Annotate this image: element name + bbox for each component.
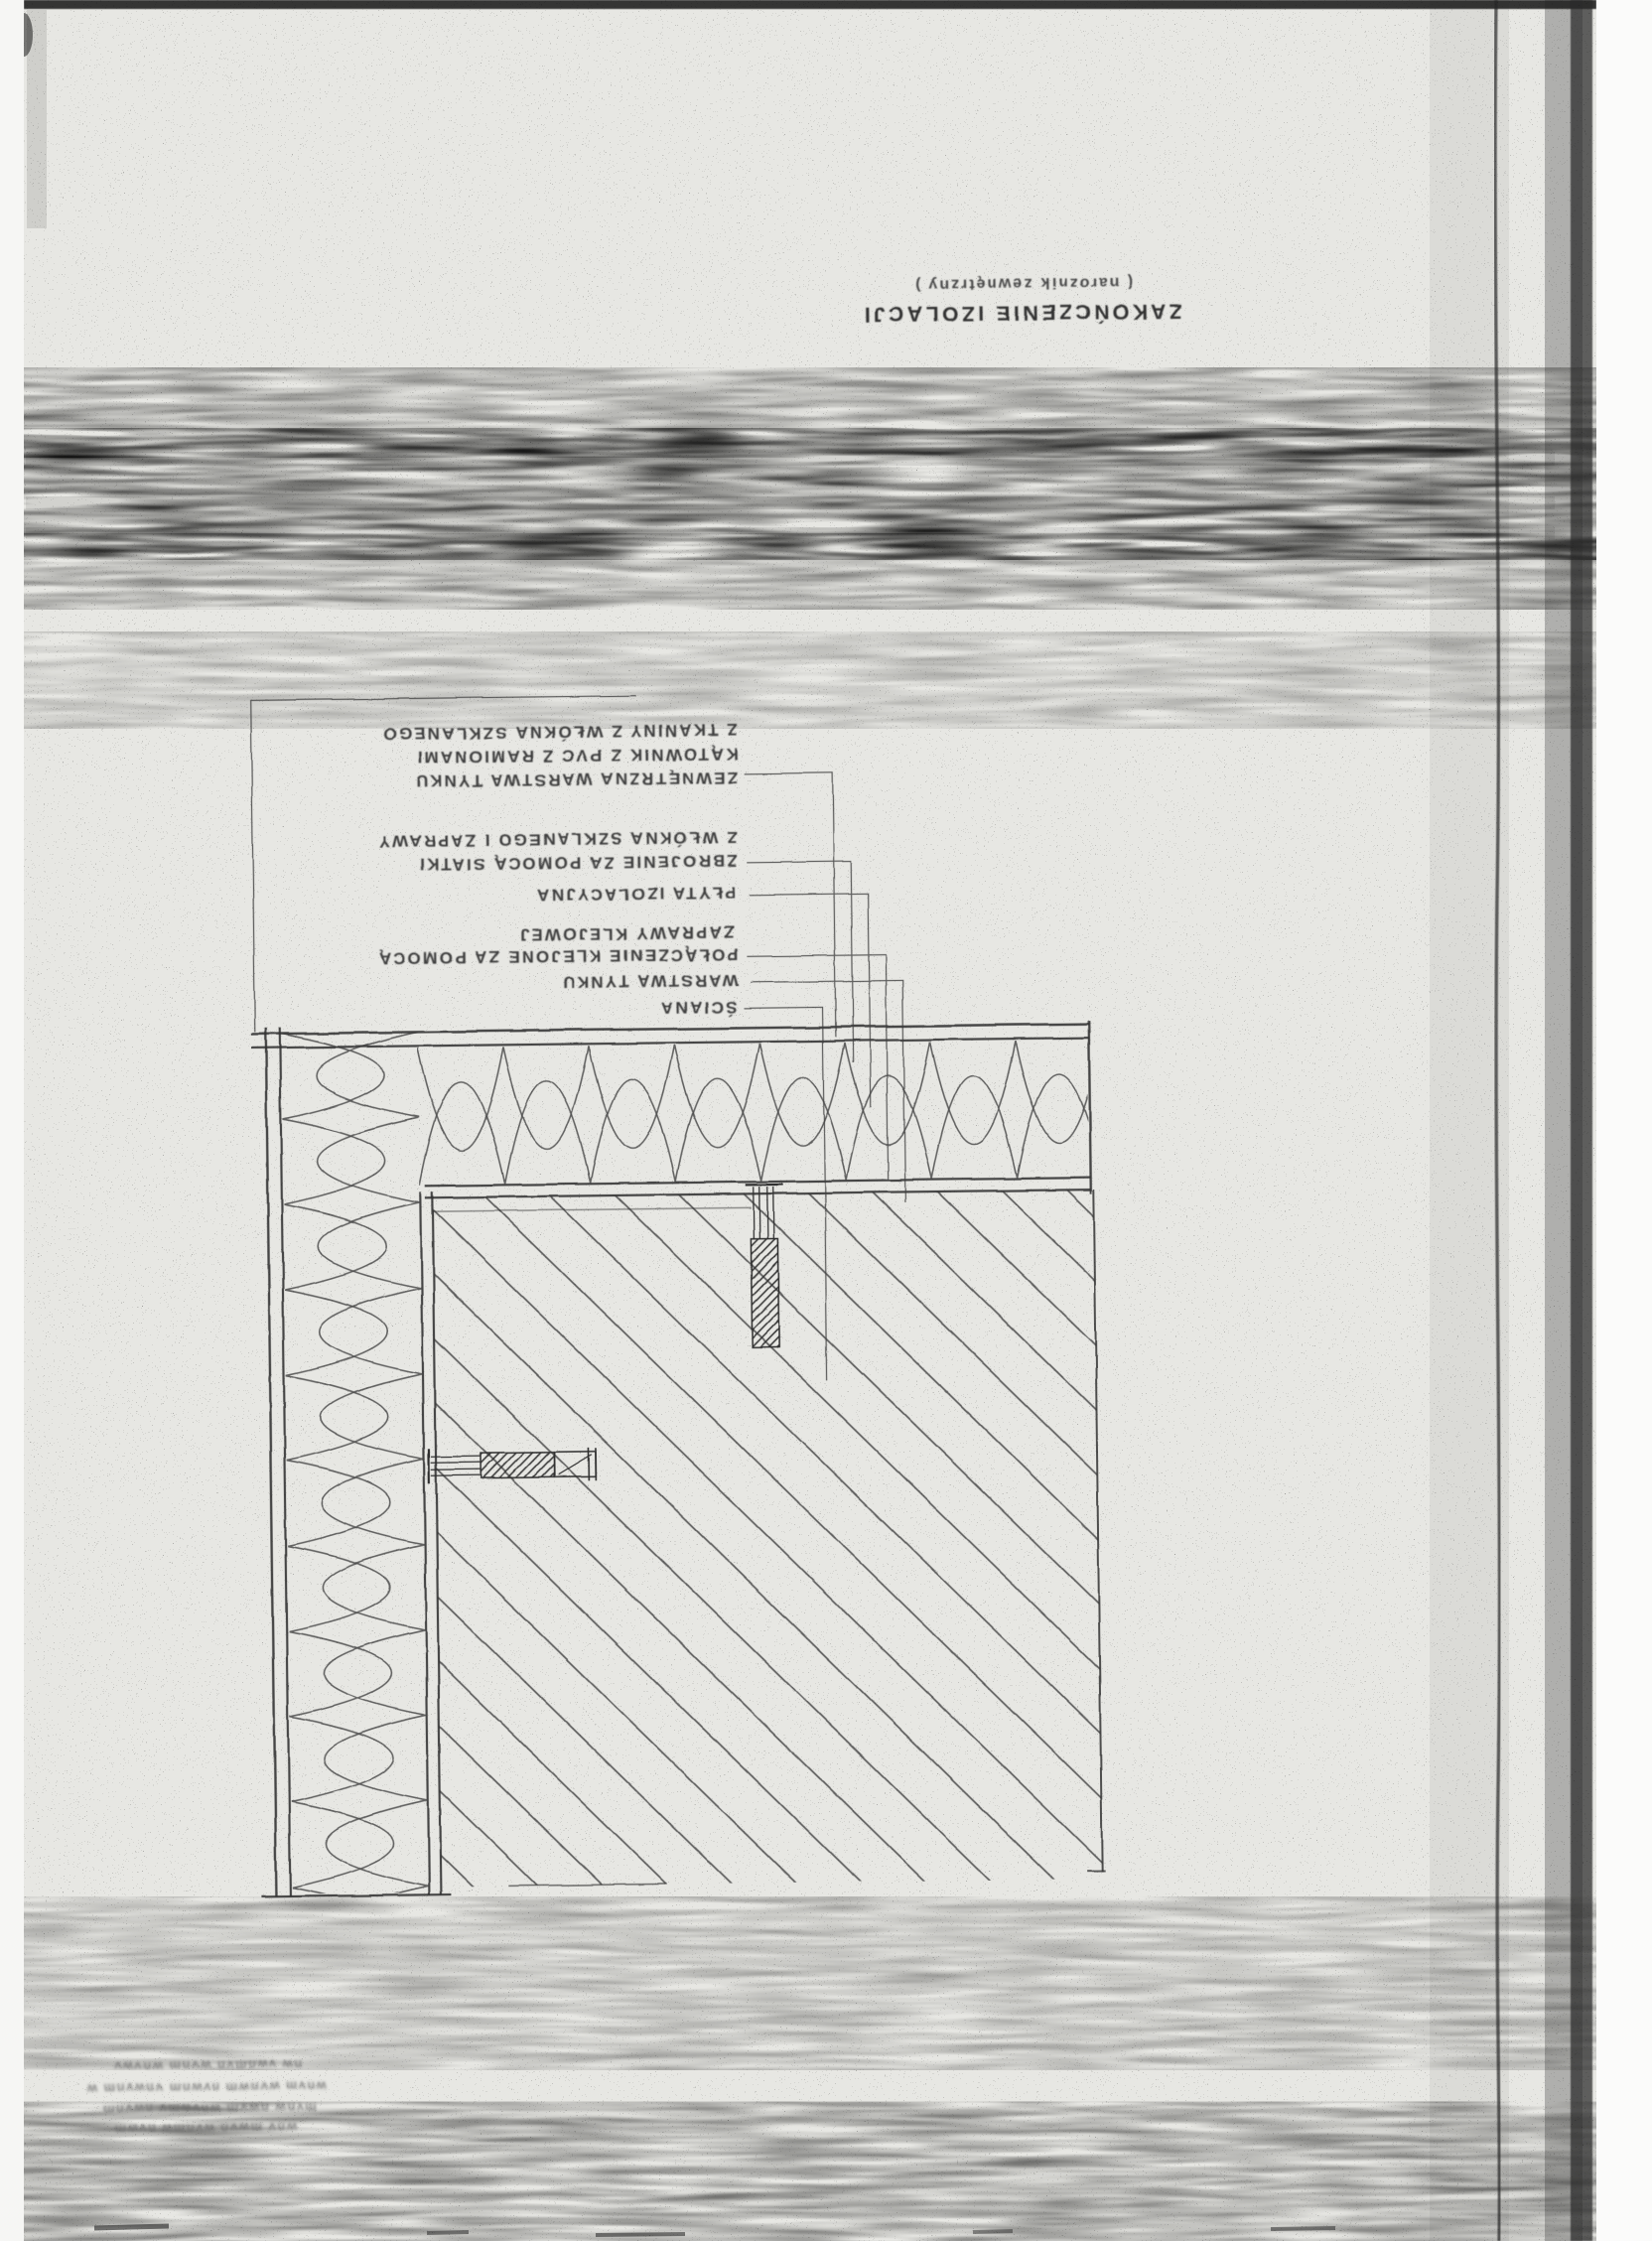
- left-margin: [0, 0, 24, 2241]
- right-margin: [1596, 0, 1652, 2241]
- scanned-page: Z TKANINY Z WŁÓKNA SZKLANEGO KĄTOWNIK Z …: [0, 0, 1652, 2241]
- scan-canvas: Z TKANINY Z WŁÓKNA SZKLANEGO KĄTOWNIK Z …: [0, 0, 1652, 2241]
- scan-noise-overlay: [24, 0, 1596, 2241]
